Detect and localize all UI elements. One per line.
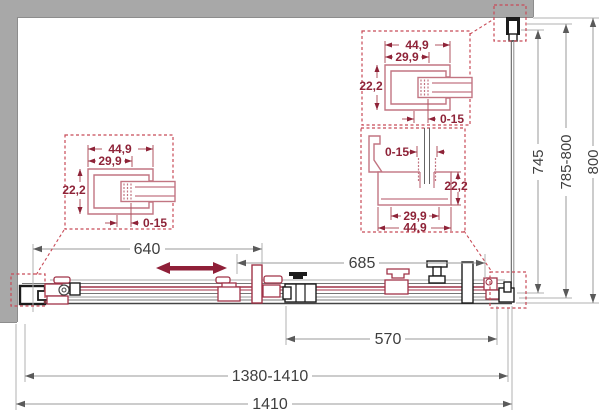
- detail-box-corner: 0-15 22,2 29,9 44,9: [361, 128, 468, 235]
- dim-800-label: 800: [585, 149, 600, 174]
- detail-top-adjust: 0-15: [440, 112, 464, 126]
- detail-box-top-right: 44,9 29,9 22,2 0-15: [359, 31, 472, 126]
- detail-left-height: 22,2: [62, 183, 86, 197]
- slide-direction-arrow: [156, 262, 227, 274]
- technical-drawing-canvas: 640 685 570 1380-1410 1410: [0, 0, 600, 412]
- roller-carriage-center-right: [385, 269, 409, 294]
- detail-corner-adjust: 0-15: [385, 145, 409, 159]
- leader-left-detail: [36, 230, 64, 275]
- dim-785-800: 785-800: [519, 24, 575, 298]
- support-bracket-red: [252, 265, 262, 303]
- detail-left-width-inner: 29,9: [98, 154, 122, 168]
- detail-left-adjust: 0-15: [143, 216, 167, 230]
- dim-640-label: 640: [134, 241, 161, 258]
- wall-top: [0, 0, 534, 18]
- shower-door-schematic: 640 685 570 1380-1410 1410: [0, 0, 600, 412]
- dim-685-label: 685: [349, 255, 376, 272]
- detail-corner-height: 22,2: [444, 179, 468, 193]
- dim-1380-1410: 1380-1410: [25, 308, 508, 385]
- side-glass-panel: [506, 17, 520, 289]
- dim-570-label: 570: [375, 331, 402, 348]
- support-bracket-black: [462, 262, 473, 303]
- wall-left: [0, 0, 18, 323]
- detail-top-height: 22,2: [359, 79, 383, 93]
- dim-785-800-label: 785-800: [558, 134, 575, 189]
- dim-745-label: 745: [530, 149, 547, 174]
- detail-top-width-inner: 29,9: [395, 50, 419, 64]
- dim-1410-label: 1410: [252, 396, 288, 412]
- guide-block: [427, 261, 447, 283]
- door-track-assembly: [20, 261, 514, 304]
- roller-carriage-center: [263, 276, 282, 297]
- dim-745: 745: [517, 30, 547, 293]
- roller-carriage-black: [283, 272, 316, 302]
- dim-685: 685: [237, 254, 485, 278]
- detail-corner-width-outer: 44,9: [403, 221, 427, 235]
- wall-profile-top-icon: [506, 17, 520, 35]
- dim-570: 570: [286, 306, 497, 348]
- detail-box-left: 44,9 29,9 22,2 0-15: [62, 135, 175, 230]
- roller-carriage-center-left: [216, 277, 240, 301]
- dim-1380-1410-label: 1380-1410: [232, 368, 309, 385]
- dim-1410: 1410: [16, 306, 512, 412]
- corner-connector: [484, 278, 514, 302]
- leader-top-detail: [470, 19, 494, 34]
